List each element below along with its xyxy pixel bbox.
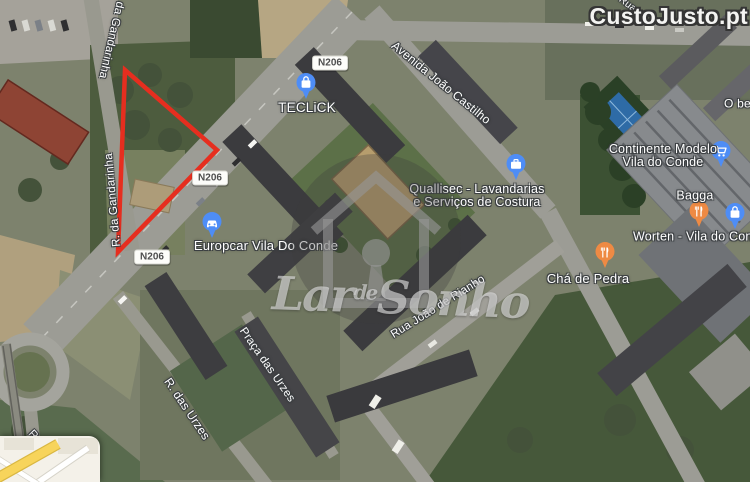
poi-label-quallisec[interactable]: Quallisec - Lavandarias e Serviços de Co… — [409, 183, 544, 209]
poi-label-bagga[interactable]: Bagga — [676, 189, 713, 202]
poi-label-europcar[interactable]: Europcar Vila Do Conde — [194, 239, 338, 253]
pin-cha-de-pedra[interactable] — [593, 241, 617, 271]
inset-street-map[interactable] — [0, 436, 100, 482]
pin-bagga[interactable] — [687, 200, 711, 230]
poi-label-continente[interactable]: Continente Modelo Vila do Conde — [609, 143, 717, 169]
poi-label-teclick[interactable]: TECLiCK — [278, 101, 336, 115]
pin-europcar[interactable] — [200, 211, 224, 241]
poi-label-worten[interactable]: Worten - Vila do Conde — [633, 230, 750, 243]
route-badge-n206-3: N206 — [134, 250, 170, 265]
car-icon — [207, 221, 217, 228]
route-badge-n206-2: N206 — [192, 171, 228, 186]
agency-name-watermark: LardeSonho — [271, 266, 493, 328]
pin-teclick[interactable] — [294, 72, 318, 102]
poi-label-cha-de-pedra[interactable]: Chá de Pedra — [547, 272, 630, 286]
pin-quallisec[interactable] — [504, 153, 528, 183]
pin-worten[interactable] — [723, 202, 747, 232]
map-stage: da Gandarinha R. da Gandarinha Avenida J… — [0, 0, 750, 482]
inset-map-graphic — [0, 436, 100, 482]
poi-label-o-be[interactable]: O be — [724, 98, 750, 111]
portal-watermark: CustoJusto.pt — [590, 3, 749, 30]
route-badge-n206-1: N206 — [312, 56, 348, 71]
